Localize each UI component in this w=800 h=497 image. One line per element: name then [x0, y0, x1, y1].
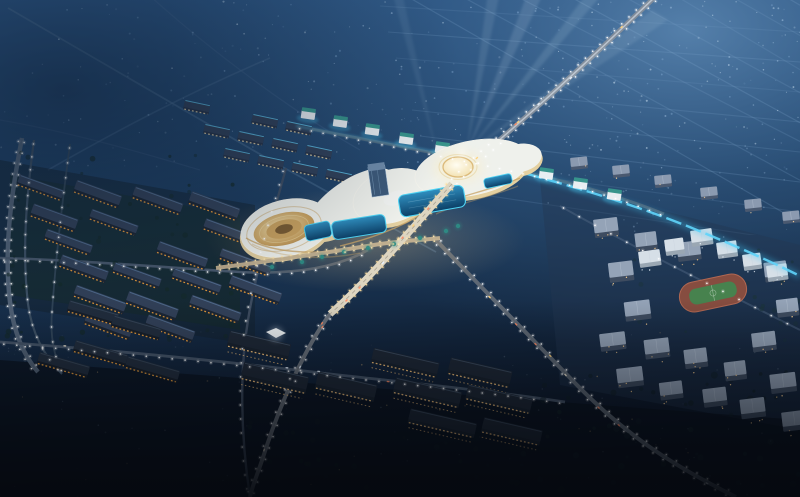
vignette-overlays: [0, 0, 800, 497]
top-left-vignette: [0, 0, 800, 497]
scene-svg: [0, 0, 800, 497]
aerial-city-night-render: [0, 0, 800, 497]
